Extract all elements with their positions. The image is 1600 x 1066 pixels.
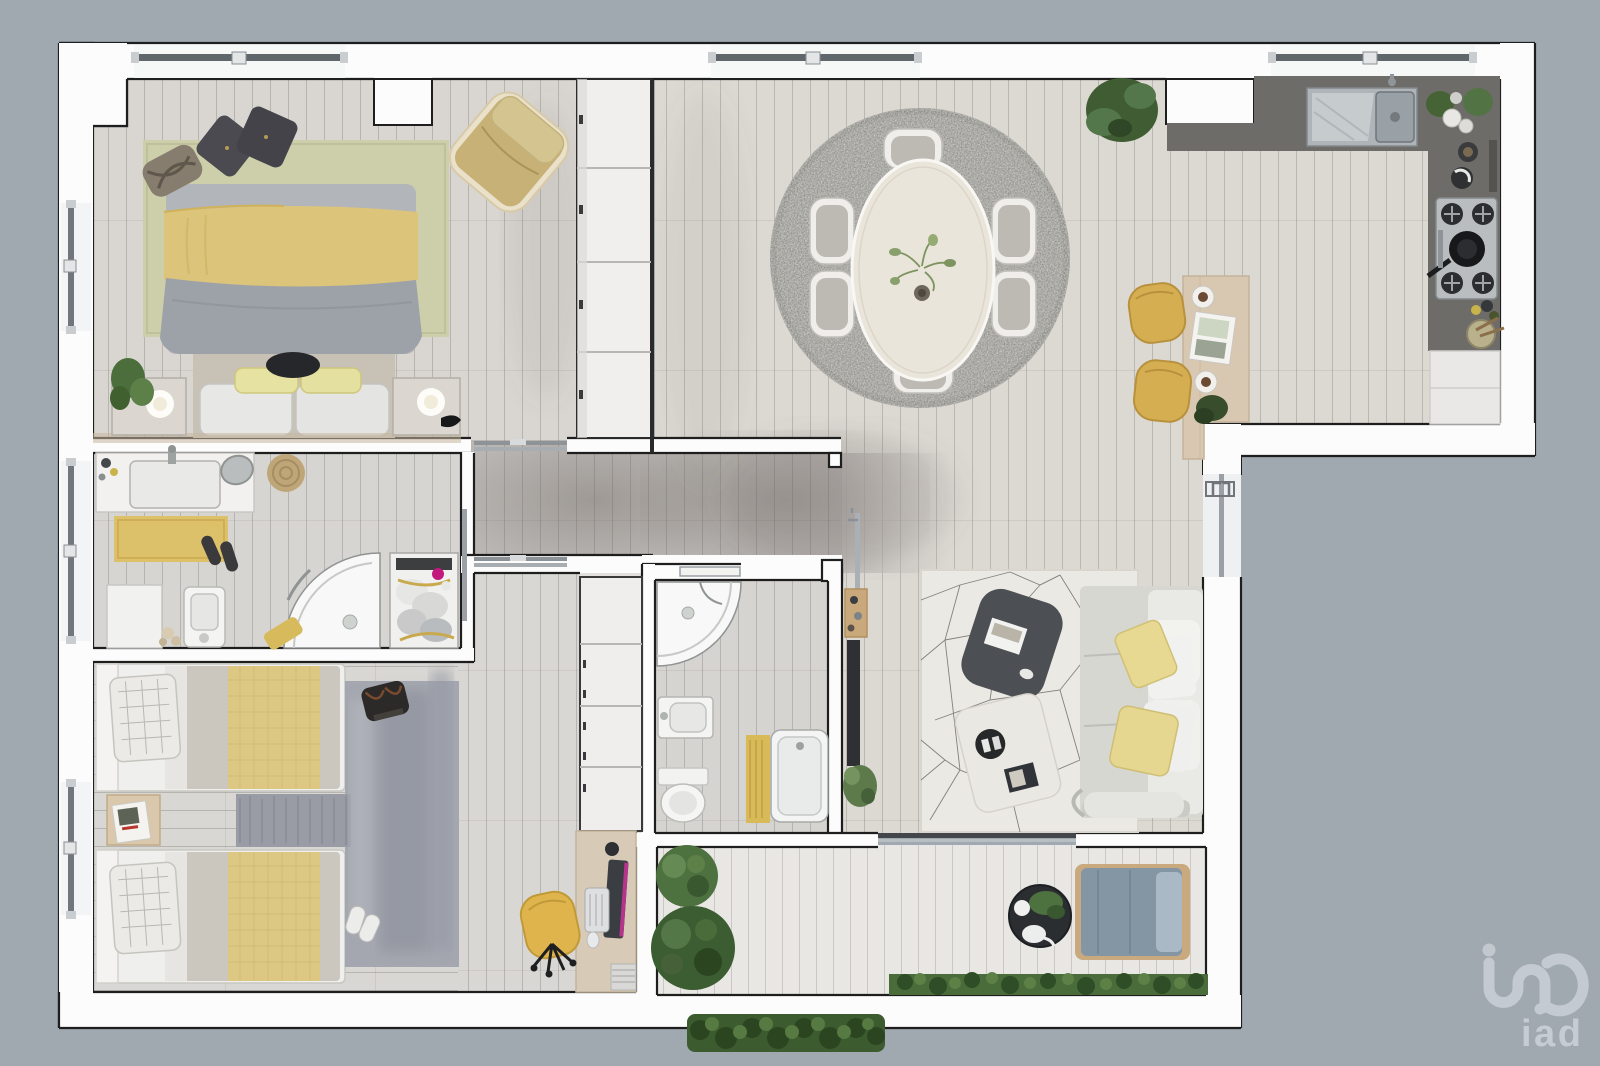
- svg-text:iad: iad: [1521, 1013, 1583, 1055]
